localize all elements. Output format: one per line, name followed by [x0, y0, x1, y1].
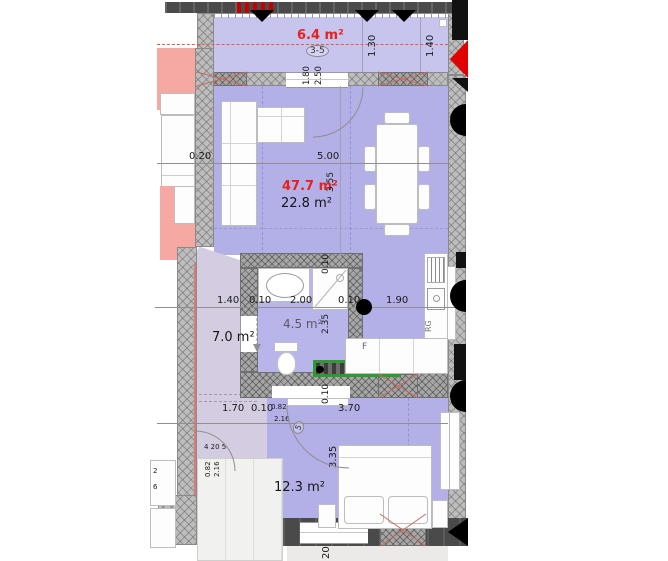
left-wall-upper: [195, 48, 214, 247]
dim-hall-w: 1.40: [217, 296, 239, 306]
grid-line: [214, 228, 448, 229]
dim-bath-w: 2.00: [290, 296, 312, 306]
dim-bedroom-door-w: 0.82: [271, 404, 287, 411]
red-dashed-line: [157, 44, 448, 45]
dim-bath-wall-top: 0.10: [322, 248, 331, 274]
dining-chair: [418, 146, 430, 172]
dim-wall-1: 0.10: [249, 296, 271, 306]
neighbor-cutout: [174, 186, 195, 224]
sofa-horizontal: [257, 107, 305, 143]
hall-area-label: 7.0 m²: [212, 331, 255, 345]
edge-box-b: [150, 508, 176, 548]
dining-table: [376, 124, 418, 224]
top-wall: [165, 2, 461, 13]
balcony-corner-box: [439, 19, 447, 27]
dim-balcony-1: 1.30: [368, 27, 378, 57]
dim-wall-3: 0.10: [251, 404, 273, 414]
grid-line: [199, 401, 257, 402]
pillow: [344, 496, 384, 524]
dining-chair: [384, 224, 410, 236]
dim-line: [155, 307, 462, 308]
below-wall-strip: [287, 546, 448, 561]
bedroom-area-label: 12.3 m²: [274, 481, 325, 495]
corner-black: [452, 0, 468, 40]
balcony-area-label: 6.4 m²: [297, 29, 344, 43]
dining-chair: [364, 184, 376, 210]
right-wall-black-b: [454, 344, 466, 380]
pier-mid: [378, 72, 428, 86]
neighbor-furniture: [160, 93, 195, 115]
balcony-railing: [214, 13, 448, 18]
dim-wall-2: 0.10: [338, 296, 360, 306]
bath-wall-top: [240, 253, 363, 268]
dim-balcony-door-w: 1.80: [303, 57, 312, 85]
nightstand: [432, 500, 448, 528]
shower-drain: [336, 274, 344, 282]
dim-wall-offset: 0.20: [189, 152, 211, 162]
floor-plan: 6.4 m² 47.7 m² 22.8 m² 7.0 m² 4.5 m² 12.…: [0, 0, 668, 561]
dim-bath-d: 2.35: [322, 308, 331, 334]
kitchen-unit-marker: [316, 366, 324, 373]
toilet-tank: [274, 342, 298, 352]
bathroom-area-label: 4.5 m²: [283, 318, 322, 331]
dim-line: [340, 86, 341, 255]
stove: [427, 257, 445, 283]
dim-living-w: 5.00: [317, 152, 339, 162]
toilet-bowl: [277, 352, 296, 375]
edge-text-a: 2: [153, 468, 157, 475]
pier-x-mid: [378, 374, 418, 398]
dim-entry-door-h: 2.16: [214, 453, 221, 477]
left-wall-red-line: [194, 263, 196, 520]
dim-entry-door-w: 0.82: [205, 453, 212, 477]
kitchen-sink-drain: [433, 295, 440, 302]
top-wall-red-stripes: [237, 2, 277, 13]
dining-chair: [418, 184, 430, 210]
dim-bath-wall-bottom: 0.10: [322, 378, 331, 404]
dim-line: [157, 163, 448, 164]
dim-balcony-2: 1.40: [426, 27, 436, 57]
dining-chair: [364, 146, 376, 172]
right-wall-black-a: [456, 252, 466, 268]
bedroom-door-opening: [272, 386, 350, 398]
balcony-door-tag: 3-5: [306, 45, 329, 57]
entry-door-tag: 4 20 5: [204, 444, 226, 451]
nightstand: [318, 504, 336, 528]
dim-living-d: 3.55: [327, 164, 336, 192]
dim-balcony-door-h: 2.50: [315, 57, 324, 85]
grid-line: [350, 86, 351, 255]
pillow: [388, 496, 428, 524]
range-label: RG: [424, 312, 433, 332]
kitchen-counter-bottom: [345, 338, 448, 374]
dim-bedroom-d: 3.35: [329, 440, 339, 468]
dim-bedroom-door-h: 2.16: [274, 416, 290, 423]
dim-bedroom-w: 3.70: [338, 404, 360, 414]
fridge-label: F: [362, 342, 367, 352]
dim-kitchen-w: 1.90: [386, 296, 408, 306]
dim-hall-w-lower: 1.70: [222, 404, 244, 414]
dim-bottom-window: 20: [322, 535, 332, 559]
edge-text-b: 6: [153, 484, 157, 491]
dining-chair: [384, 112, 410, 124]
living-area-label: 22.8 m²: [281, 197, 332, 211]
